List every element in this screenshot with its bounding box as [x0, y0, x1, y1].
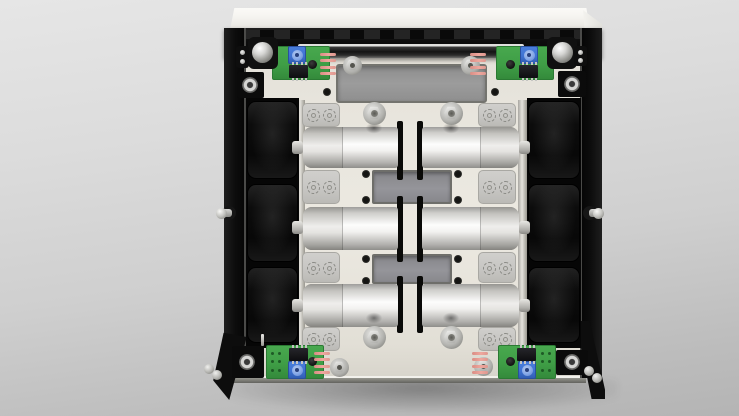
clamp-stamp-inner: [503, 266, 508, 271]
pin-header-pin: [472, 371, 488, 374]
trim-pot-slot: [295, 53, 299, 57]
plate-hole: [491, 88, 499, 96]
film-capacitor-end: [480, 207, 519, 250]
capacitor-terminal-nub: [292, 299, 303, 312]
clamp-stamp-inner: [503, 113, 508, 118]
plate-hole: [362, 196, 370, 204]
pcb-via: [541, 360, 544, 363]
clamp-stamp-inner: [487, 113, 492, 118]
clamp-stamp-inner: [311, 337, 316, 342]
capacitor-terminal-nub: [292, 221, 303, 234]
clamp-stamp-inner: [311, 113, 316, 118]
clamp-stamp-inner: [311, 266, 316, 271]
corner-screw: [212, 370, 222, 380]
plate-hole: [362, 255, 370, 263]
clamp-stamp-inner: [327, 113, 332, 118]
drop-shadow: [226, 378, 618, 412]
standoff-hole: [337, 365, 342, 370]
standoff-hole: [350, 63, 355, 68]
ring-screw: [564, 354, 580, 370]
capacitor-clamp: [478, 103, 516, 127]
top-lid: [230, 8, 590, 30]
mounting-recess: [372, 170, 452, 204]
pcb-via: [271, 352, 274, 355]
pin-header-pin: [472, 352, 488, 355]
knob-screw: [240, 59, 245, 64]
pin-header-pin: [314, 358, 330, 361]
pcb-via: [278, 369, 281, 372]
clamp-stamp-inner: [327, 185, 332, 190]
pin-header-pin: [314, 365, 330, 368]
hex-screw-centre: [371, 110, 378, 117]
film-capacitor: [303, 207, 398, 250]
ic-chip: [289, 348, 308, 361]
pcb-via: [548, 360, 551, 363]
knob-screw: [240, 50, 245, 55]
dome-screw: [552, 42, 573, 63]
ring-screw: [564, 76, 580, 92]
clamp-stamp-inner: [327, 266, 332, 271]
plate-hole: [323, 88, 331, 96]
capacitor-clamp: [478, 252, 516, 283]
plate-hole: [454, 170, 462, 178]
pin-header-pin: [470, 53, 486, 56]
trim-pot-slot: [527, 53, 531, 57]
hex-screw-centre: [448, 110, 455, 117]
capacitor-terminal-nub: [519, 221, 530, 234]
ring-screw: [239, 354, 255, 370]
clamp-stamp-inner: [503, 337, 508, 342]
shadow-smudge: [442, 312, 460, 324]
clamp-stamp-inner: [487, 337, 492, 342]
electrolytic-capacitor: [247, 184, 298, 262]
film-capacitor-end: [480, 284, 519, 327]
knob-screw: [578, 58, 583, 63]
film-capacitor: [422, 284, 519, 327]
pin-header-pin: [470, 72, 486, 75]
film-capacitor-end: [303, 207, 343, 250]
capacitor-terminal-nub: [519, 299, 530, 312]
capacitor-clamp: [478, 170, 516, 204]
top-bar-vents: [244, 30, 582, 39]
film-capacitor-end: [303, 127, 343, 168]
pointer-pin: [261, 334, 264, 346]
clamp-stamp-inner: [487, 266, 492, 271]
trim-pot-slot: [295, 368, 299, 372]
dome-screw: [252, 42, 273, 63]
electrolytic-capacitor: [528, 184, 580, 262]
film-capacitor: [303, 127, 398, 168]
pin-header-pin: [470, 59, 486, 62]
hex-screw-centre: [448, 334, 455, 341]
film-capacitor: [422, 207, 519, 250]
ic-chip: [289, 65, 308, 78]
pcb-via: [541, 369, 544, 372]
pin-header-pin: [314, 352, 330, 355]
pcb-via: [271, 369, 274, 372]
capacitor-clamp: [302, 103, 340, 127]
plate-hole: [454, 255, 462, 263]
plate-hole: [454, 196, 462, 204]
trim-pot-slot: [525, 368, 529, 372]
corner-screw: [592, 373, 602, 383]
pin-header-pin: [320, 66, 336, 69]
film-capacitor: [303, 284, 398, 327]
mounting-recess: [372, 254, 452, 284]
film-capacitor-end: [480, 127, 519, 168]
pin-header-pin: [470, 66, 486, 69]
pcb-via: [548, 352, 551, 355]
ring-screw: [242, 77, 258, 93]
pin-header-pin: [472, 358, 488, 361]
capacitor-clamp: [302, 252, 340, 283]
clamp-stamp-inner: [487, 185, 492, 190]
pcb-via: [278, 352, 281, 355]
ic-chip: [519, 65, 538, 78]
pcb-via: [548, 369, 551, 372]
knob-screw: [578, 50, 583, 55]
clamp-stamp-inner: [311, 185, 316, 190]
pcb-capacitor: [506, 60, 515, 69]
pin-header-pin: [314, 371, 330, 374]
film-capacitor: [422, 127, 519, 168]
electrolytic-capacitor: [247, 267, 298, 343]
wall-screw-bead: [216, 208, 227, 219]
clamp-stamp-inner: [503, 185, 508, 190]
hex-screw-centre: [371, 334, 378, 341]
electrolytic-capacitor: [247, 101, 298, 179]
wall-screw-bead: [593, 208, 604, 219]
render-canvas: [0, 0, 739, 416]
shadow-smudge: [365, 312, 383, 324]
pcb-capacitor: [506, 357, 515, 366]
pin-header-pin: [320, 53, 336, 56]
electrolytic-capacitor: [528, 101, 580, 179]
film-capacitor-end: [303, 284, 343, 327]
pin-header-pin: [320, 59, 336, 62]
ic-chip: [517, 348, 536, 361]
pcb-capacitor: [308, 60, 317, 69]
pin-header-pin: [320, 72, 336, 75]
pcb-via: [541, 352, 544, 355]
pin-header-pin: [472, 365, 488, 368]
capacitor-terminal-nub: [519, 141, 530, 154]
pcb-via: [278, 360, 281, 363]
electrolytic-capacitor: [528, 267, 580, 343]
capacitor-clamp: [302, 170, 340, 204]
plate-hole: [362, 170, 370, 178]
clamp-stamp-inner: [327, 337, 332, 342]
pcb-via: [271, 360, 274, 363]
capacitor-terminal-nub: [292, 141, 303, 154]
